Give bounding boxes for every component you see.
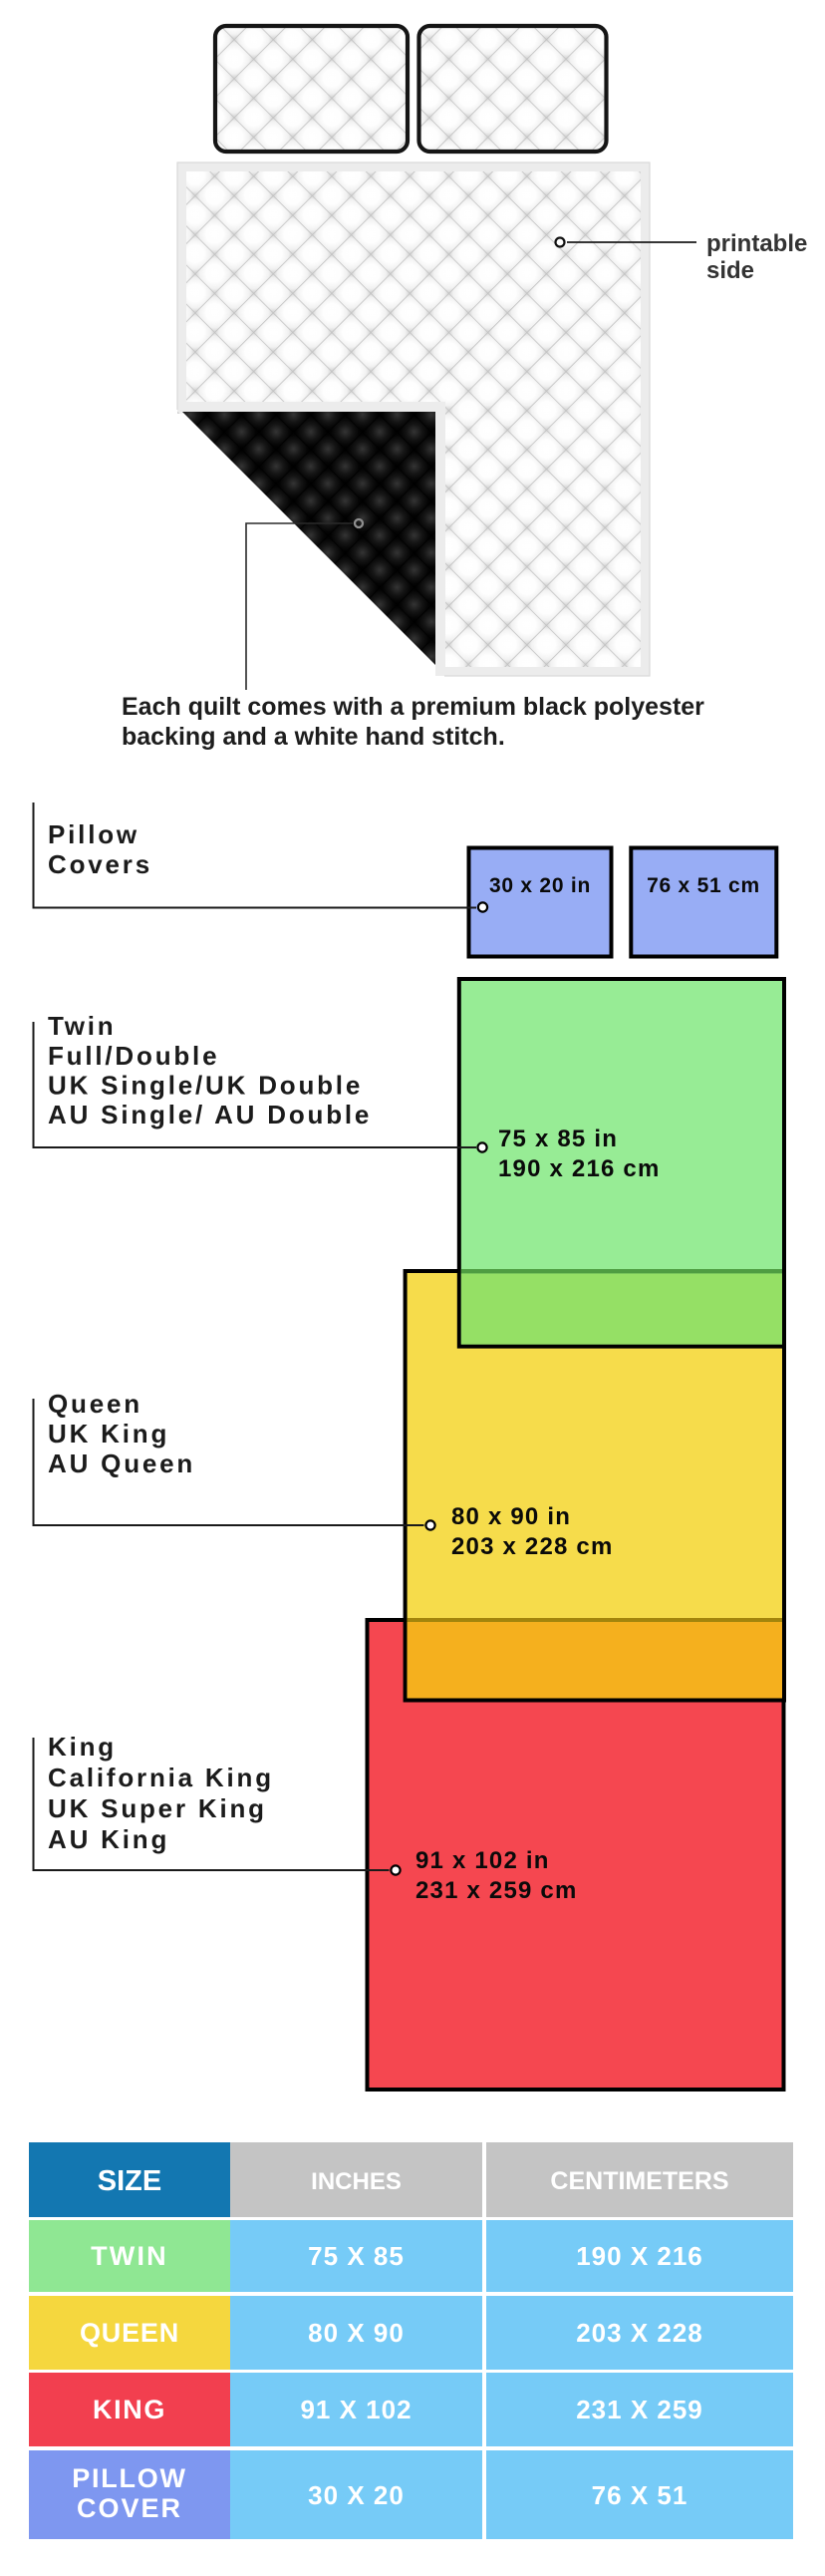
svg-text:Covers: Covers xyxy=(48,849,152,879)
svg-text:printable: printable xyxy=(706,230,807,257)
svg-text:76 x 51 cm: 76 x 51 cm xyxy=(647,874,760,897)
svg-text:Full/Double: Full/Double xyxy=(48,1041,219,1071)
svg-text:UK Single/UK Double: UK Single/UK Double xyxy=(48,1071,363,1101)
svg-text:UK Super King: UK Super King xyxy=(48,1793,267,1823)
svg-text:76 X 51: 76 X 51 xyxy=(592,2480,688,2510)
svg-text:SIZE: SIZE xyxy=(98,2165,161,2197)
svg-text:QUEEN: QUEEN xyxy=(80,2318,179,2348)
svg-text:231 x 259 cm: 231 x 259 cm xyxy=(415,1877,578,1904)
svg-text:Each quilt comes with a premiu: Each quilt comes with a premium black po… xyxy=(122,693,704,721)
svg-text:PILLOW: PILLOW xyxy=(72,2463,186,2493)
svg-text:INCHES: INCHES xyxy=(311,2168,402,2195)
svg-text:King: King xyxy=(48,1732,117,1762)
svg-text:CENTIMETERS: CENTIMETERS xyxy=(550,2167,728,2195)
svg-text:backing and a white hand stitc: backing and a white hand stitch. xyxy=(122,723,505,751)
svg-text:KING: KING xyxy=(93,2395,166,2424)
svg-text:203 x 228 cm: 203 x 228 cm xyxy=(451,1533,614,1560)
svg-text:California King: California King xyxy=(48,1763,274,1792)
svg-text:75 X 85: 75 X 85 xyxy=(308,2241,405,2271)
svg-text:231 X 259: 231 X 259 xyxy=(576,2395,703,2424)
svg-text:AU Single/ AU Double: AU Single/ AU Double xyxy=(48,1100,372,1129)
svg-text:AU King: AU King xyxy=(48,1824,169,1854)
svg-text:91 X 102: 91 X 102 xyxy=(300,2395,412,2424)
svg-text:30 X 20: 30 X 20 xyxy=(308,2480,405,2510)
svg-text:190 X 216: 190 X 216 xyxy=(576,2241,703,2271)
svg-text:190 x 216 cm: 190 x 216 cm xyxy=(498,1155,661,1182)
svg-text:AU Queen: AU Queen xyxy=(48,1449,195,1478)
svg-text:side: side xyxy=(706,257,754,284)
svg-text:Pillow: Pillow xyxy=(48,819,139,849)
svg-text:80 X 90: 80 X 90 xyxy=(308,2318,405,2348)
svg-text:Queen: Queen xyxy=(48,1389,142,1419)
svg-text:COVER: COVER xyxy=(77,2493,182,2523)
svg-text:TWIN: TWIN xyxy=(91,2241,168,2271)
svg-text:91 x 102 in: 91 x 102 in xyxy=(415,1847,550,1874)
svg-text:203 X 228: 203 X 228 xyxy=(576,2318,703,2348)
svg-text:75 x 85 in: 75 x 85 in xyxy=(498,1126,618,1152)
svg-text:Twin: Twin xyxy=(48,1011,116,1041)
svg-text:30 x 20 in: 30 x 20 in xyxy=(489,874,591,897)
svg-text:UK King: UK King xyxy=(48,1419,169,1449)
svg-text:80 x 90 in: 80 x 90 in xyxy=(451,1503,571,1530)
